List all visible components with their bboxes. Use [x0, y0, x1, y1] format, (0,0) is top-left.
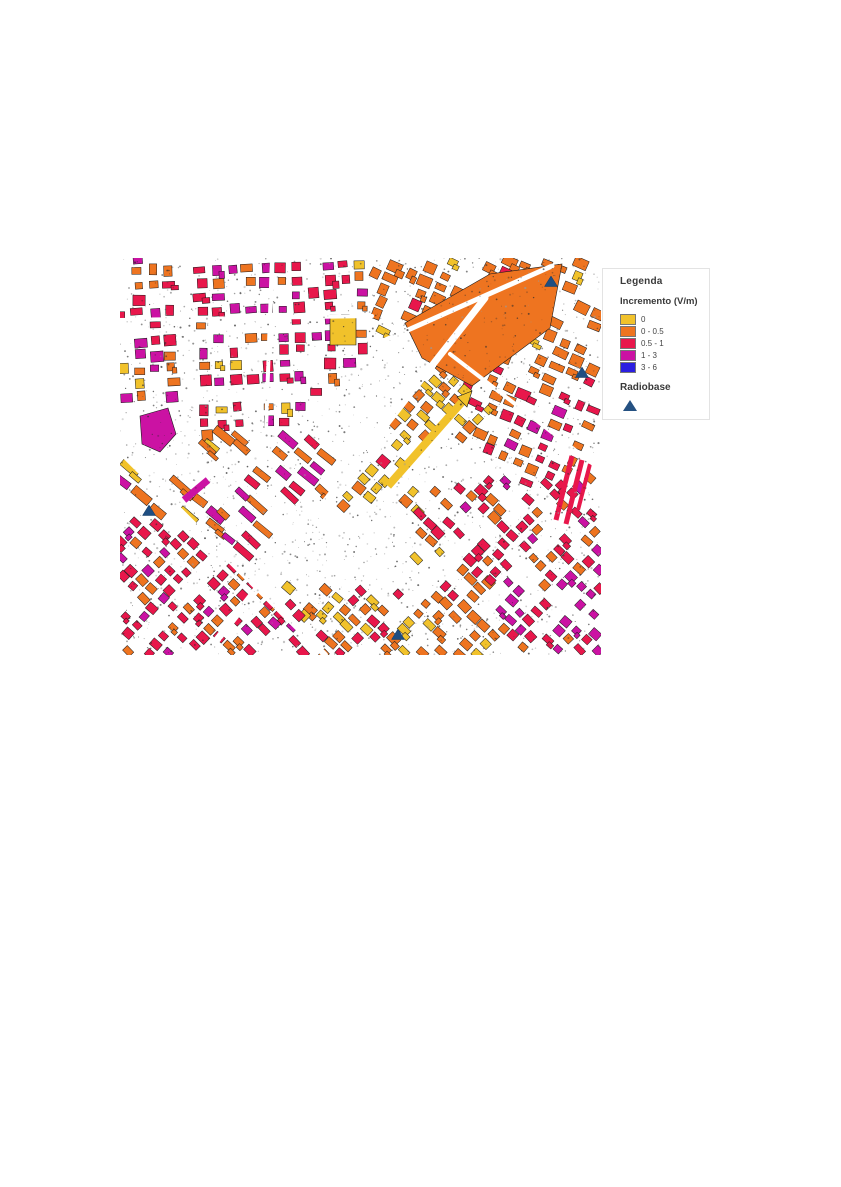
legend-item-3: 1 - 3 — [620, 350, 712, 361]
legend-swatch-3-icon — [620, 350, 636, 361]
legend-item-1: 0 - 0.5 — [620, 326, 712, 337]
legend-item-label: 0.5 - 1 — [641, 339, 664, 348]
legend-subtitle: Incremento (V/m) — [620, 296, 712, 307]
legend-item-label: 0 - 0.5 — [641, 327, 664, 336]
document-page: Legenda Incremento (V/m) 0 0 - 0.5 0.5 -… — [0, 0, 841, 1187]
legend-swatch-4-icon — [620, 362, 636, 373]
legend-swatch-2-icon — [620, 338, 636, 349]
legend-item-0: 0 — [620, 314, 712, 325]
legend-swatch-1-icon — [620, 326, 636, 337]
legend-item-2: 0.5 - 1 — [620, 338, 712, 349]
map-legend: Legenda Incremento (V/m) 0 0 - 0.5 0.5 -… — [620, 276, 712, 411]
legend-item-label: 0 — [641, 315, 645, 324]
legend-swatch-0-icon — [620, 314, 636, 325]
legend-item-4: 3 - 6 — [620, 362, 712, 373]
legend-radiobase-label: Radiobase — [620, 382, 712, 393]
legend-item-label: 3 - 6 — [641, 363, 657, 372]
legend-title: Legenda — [620, 276, 712, 287]
radiobase-triangle-icon — [623, 400, 637, 411]
emf-increment-map — [120, 258, 601, 655]
legend-item-label: 1 - 3 — [641, 351, 657, 360]
